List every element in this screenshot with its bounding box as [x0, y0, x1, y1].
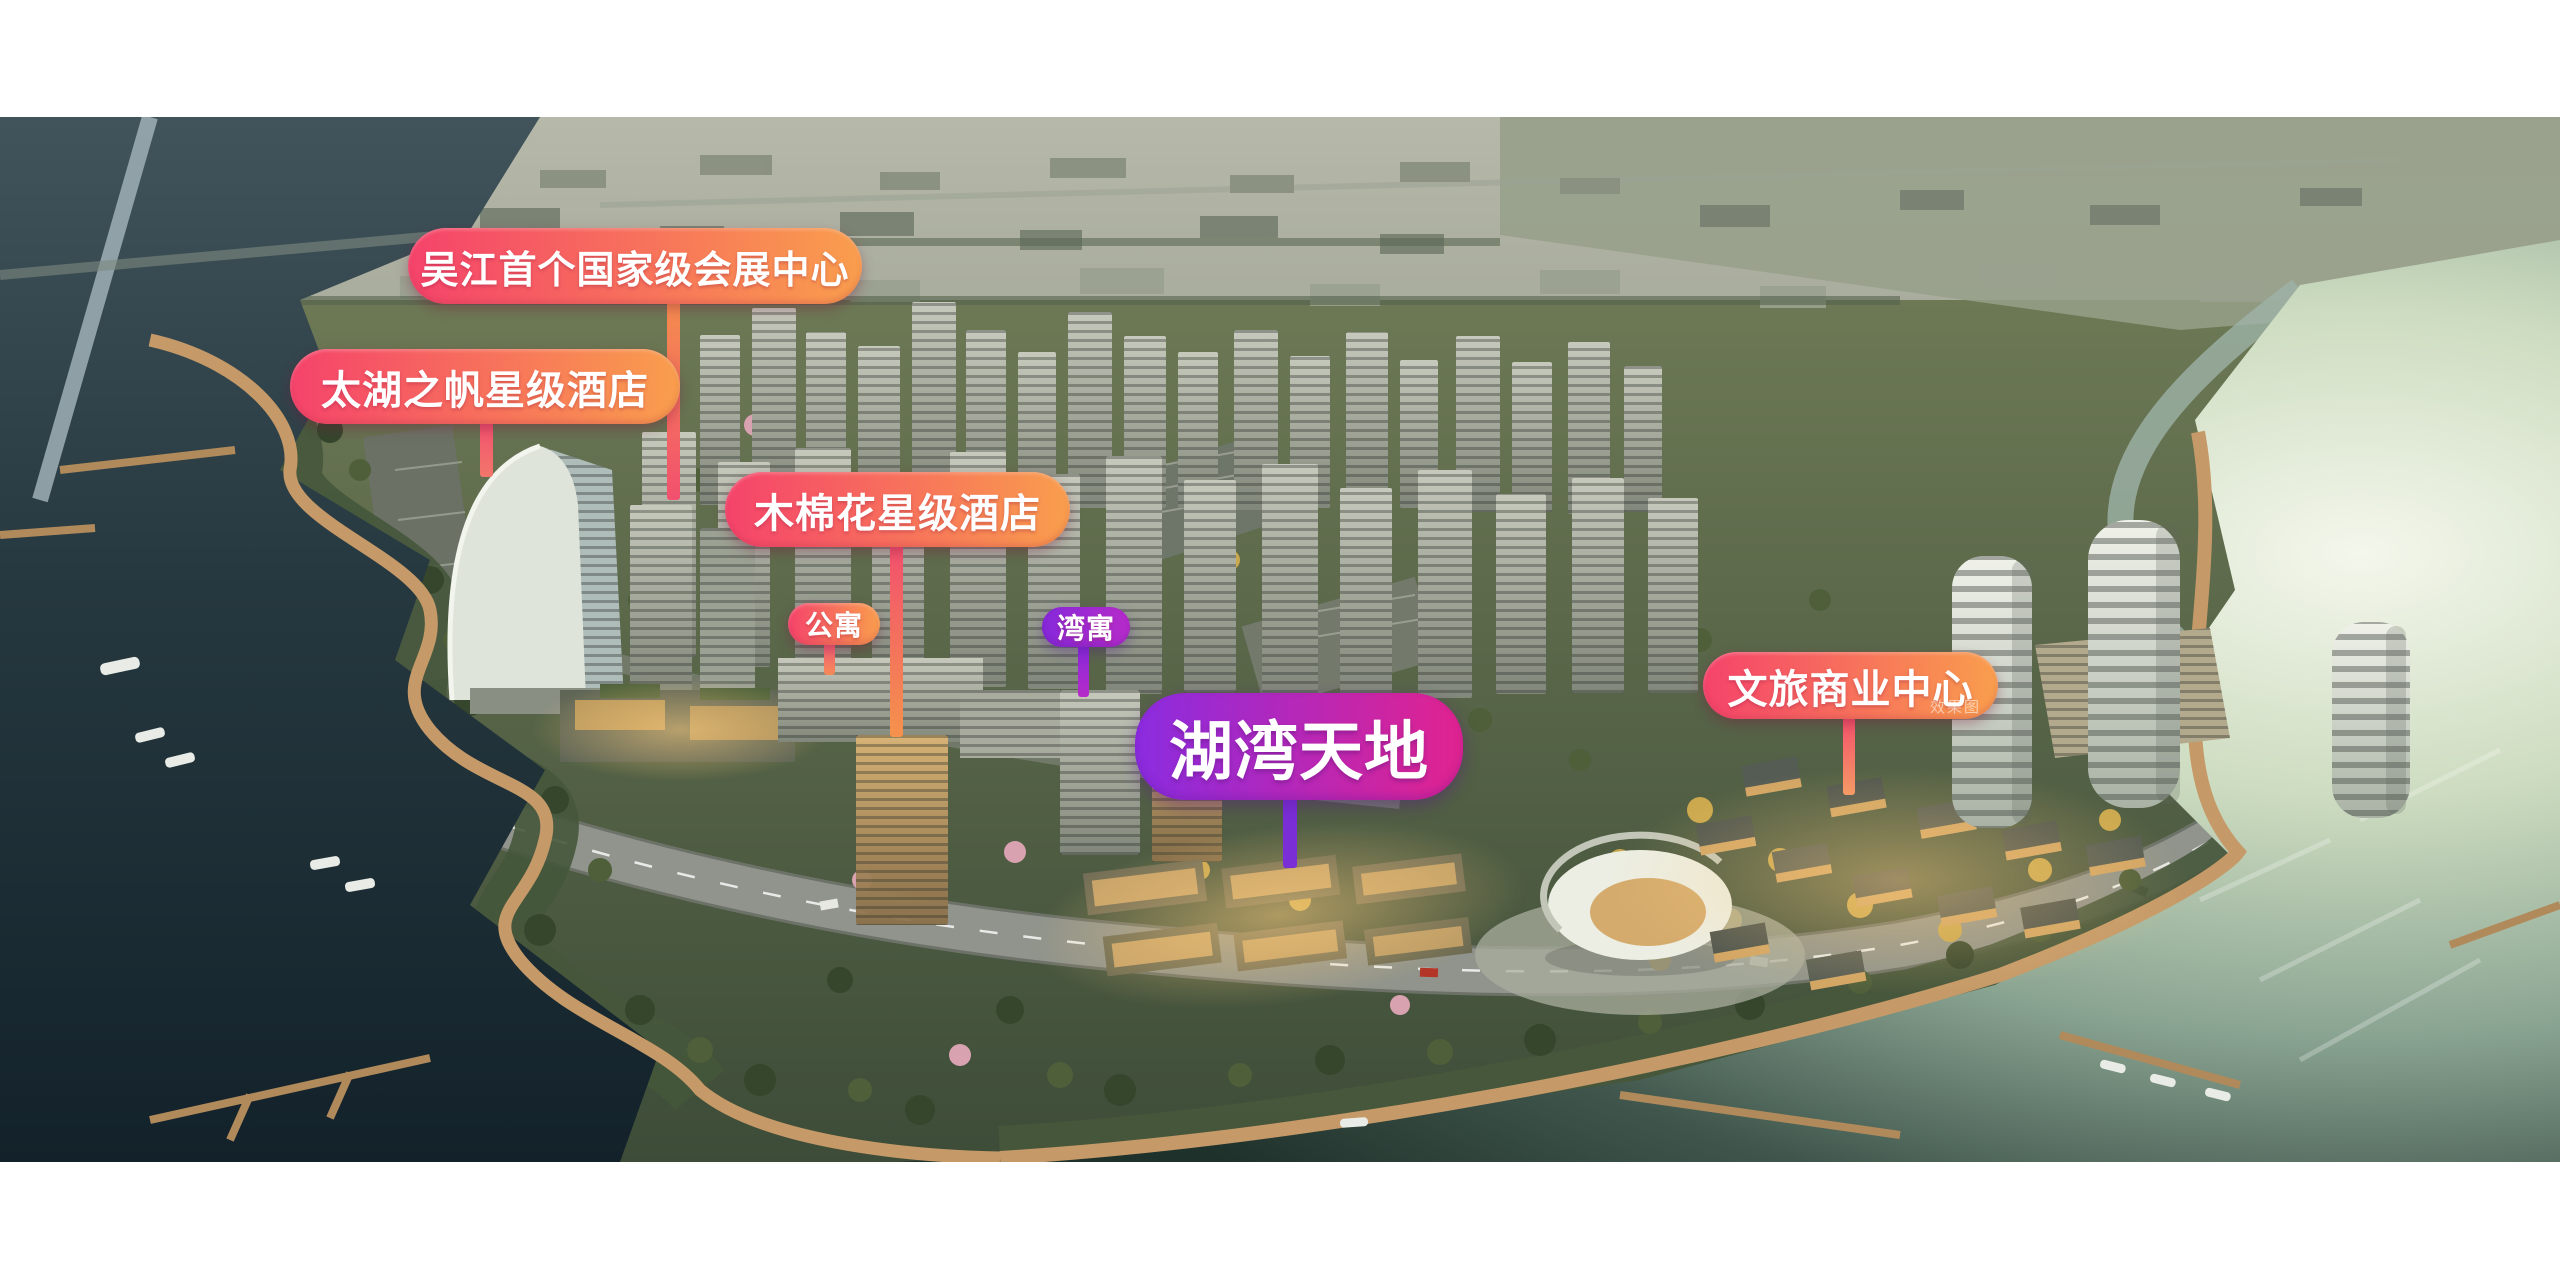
connector-bay-apartment — [1078, 645, 1089, 697]
label-convention-center: 吴江首个国家级会展中心 — [408, 228, 862, 304]
label-taihu-sail-hotel: 太湖之帆星级酒店 — [290, 349, 680, 424]
render-watermark: 效果图 — [1930, 696, 1981, 717]
connector-huwan-tiandi — [1283, 798, 1297, 868]
label-huwan-tiandi: 湖湾天地 — [1135, 693, 1463, 800]
letterbox-bottom — [0, 1162, 2560, 1280]
label-kapok-hotel: 木棉花星级酒店 — [725, 472, 1070, 547]
aerial-rendering: 吴江首个国家级会展中心 太湖之帆星级酒店 木棉花星级酒店 公寓 湾寓 湖湾天地 … — [0, 117, 2560, 1162]
connector-apartment — [824, 643, 835, 675]
connector-taihu-hotel — [480, 422, 493, 477]
scene-illustration — [0, 117, 2560, 1162]
connector-kapok-hotel — [890, 545, 903, 737]
connector-cultural-center — [1843, 717, 1855, 795]
label-bay-apartment: 湾寓 — [1042, 607, 1130, 647]
label-apartment: 公寓 — [788, 603, 880, 645]
page: 吴江首个国家级会展中心 太湖之帆星级酒店 木棉花星级酒店 公寓 湾寓 湖湾天地 … — [0, 0, 2560, 1280]
letterbox-top — [0, 0, 2560, 117]
